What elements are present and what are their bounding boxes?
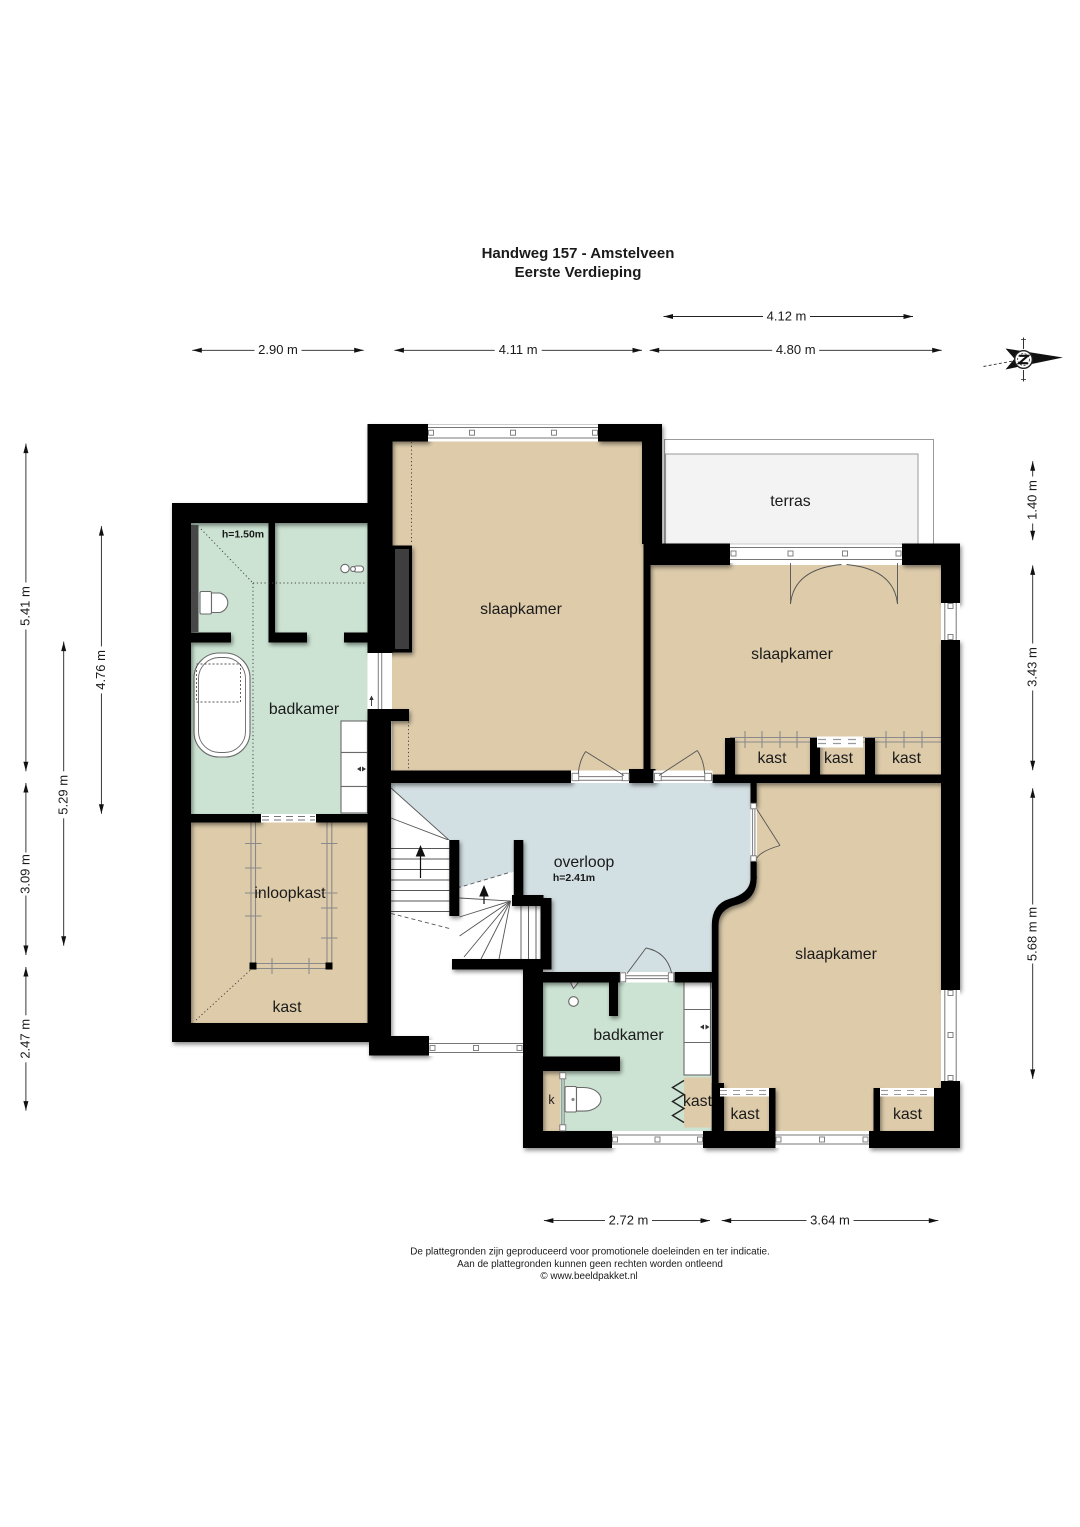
svg-text:terras: terras	[770, 493, 810, 510]
svg-text:1.40 m: 1.40 m	[1025, 480, 1040, 520]
svg-text:2.47 m: 2.47 m	[18, 1019, 33, 1059]
svg-text:5.29 m: 5.29 m	[55, 775, 70, 815]
svg-text:4.76 m: 4.76 m	[93, 650, 108, 690]
svg-text:4.12 m: 4.12 m	[767, 308, 807, 323]
svg-text:3.64 m: 3.64 m	[810, 1212, 850, 1227]
svg-text:De plattegronden zijn geproduc: De plattegronden zijn geproduceerd voor …	[410, 1247, 770, 1258]
svg-text:4.80 m: 4.80 m	[776, 342, 816, 357]
svg-text:inloopkast: inloopkast	[254, 885, 326, 902]
svg-text:3.43 m: 3.43 m	[1025, 647, 1040, 687]
svg-text:h=2.41m: h=2.41m	[553, 872, 595, 884]
svg-text:4.11 m: 4.11 m	[499, 342, 538, 357]
svg-text:badkamer: badkamer	[269, 701, 339, 718]
svg-text:3.09 m: 3.09 m	[18, 854, 33, 894]
svg-text:© www.beeldpakket.nl: © www.beeldpakket.nl	[540, 1271, 637, 1282]
svg-text:kast: kast	[731, 1106, 761, 1123]
svg-text:h=1.50m: h=1.50m	[222, 529, 264, 541]
svg-text:kast: kast	[683, 1093, 713, 1110]
svg-text:badkamer: badkamer	[593, 1027, 663, 1044]
svg-text:kast: kast	[824, 750, 854, 767]
svg-text:Handweg 157 - Amstelveen: Handweg 157 - Amstelveen	[482, 245, 675, 262]
svg-text:kast: kast	[892, 750, 922, 767]
svg-text:5.41 m: 5.41 m	[18, 586, 33, 626]
svg-text:Aan de plattegronden kunnen ge: Aan de plattegronden kunnen geen rechten…	[457, 1259, 723, 1270]
svg-text:slaapkamer: slaapkamer	[751, 646, 833, 663]
svg-text:Eerste Verdieping: Eerste Verdieping	[515, 264, 642, 281]
svg-text:5.68 m m: 5.68 m m	[1025, 907, 1040, 961]
svg-text:kast: kast	[893, 1106, 923, 1123]
svg-text:2.72 m: 2.72 m	[609, 1212, 649, 1227]
svg-text:kast: kast	[273, 999, 303, 1016]
svg-text:k: k	[548, 1093, 555, 1107]
svg-text:slaapkamer: slaapkamer	[480, 601, 562, 618]
svg-text:2.90 m: 2.90 m	[258, 342, 298, 357]
svg-text:kast: kast	[758, 750, 788, 767]
svg-text:overloop: overloop	[554, 854, 615, 871]
svg-text:slaapkamer: slaapkamer	[795, 946, 877, 963]
